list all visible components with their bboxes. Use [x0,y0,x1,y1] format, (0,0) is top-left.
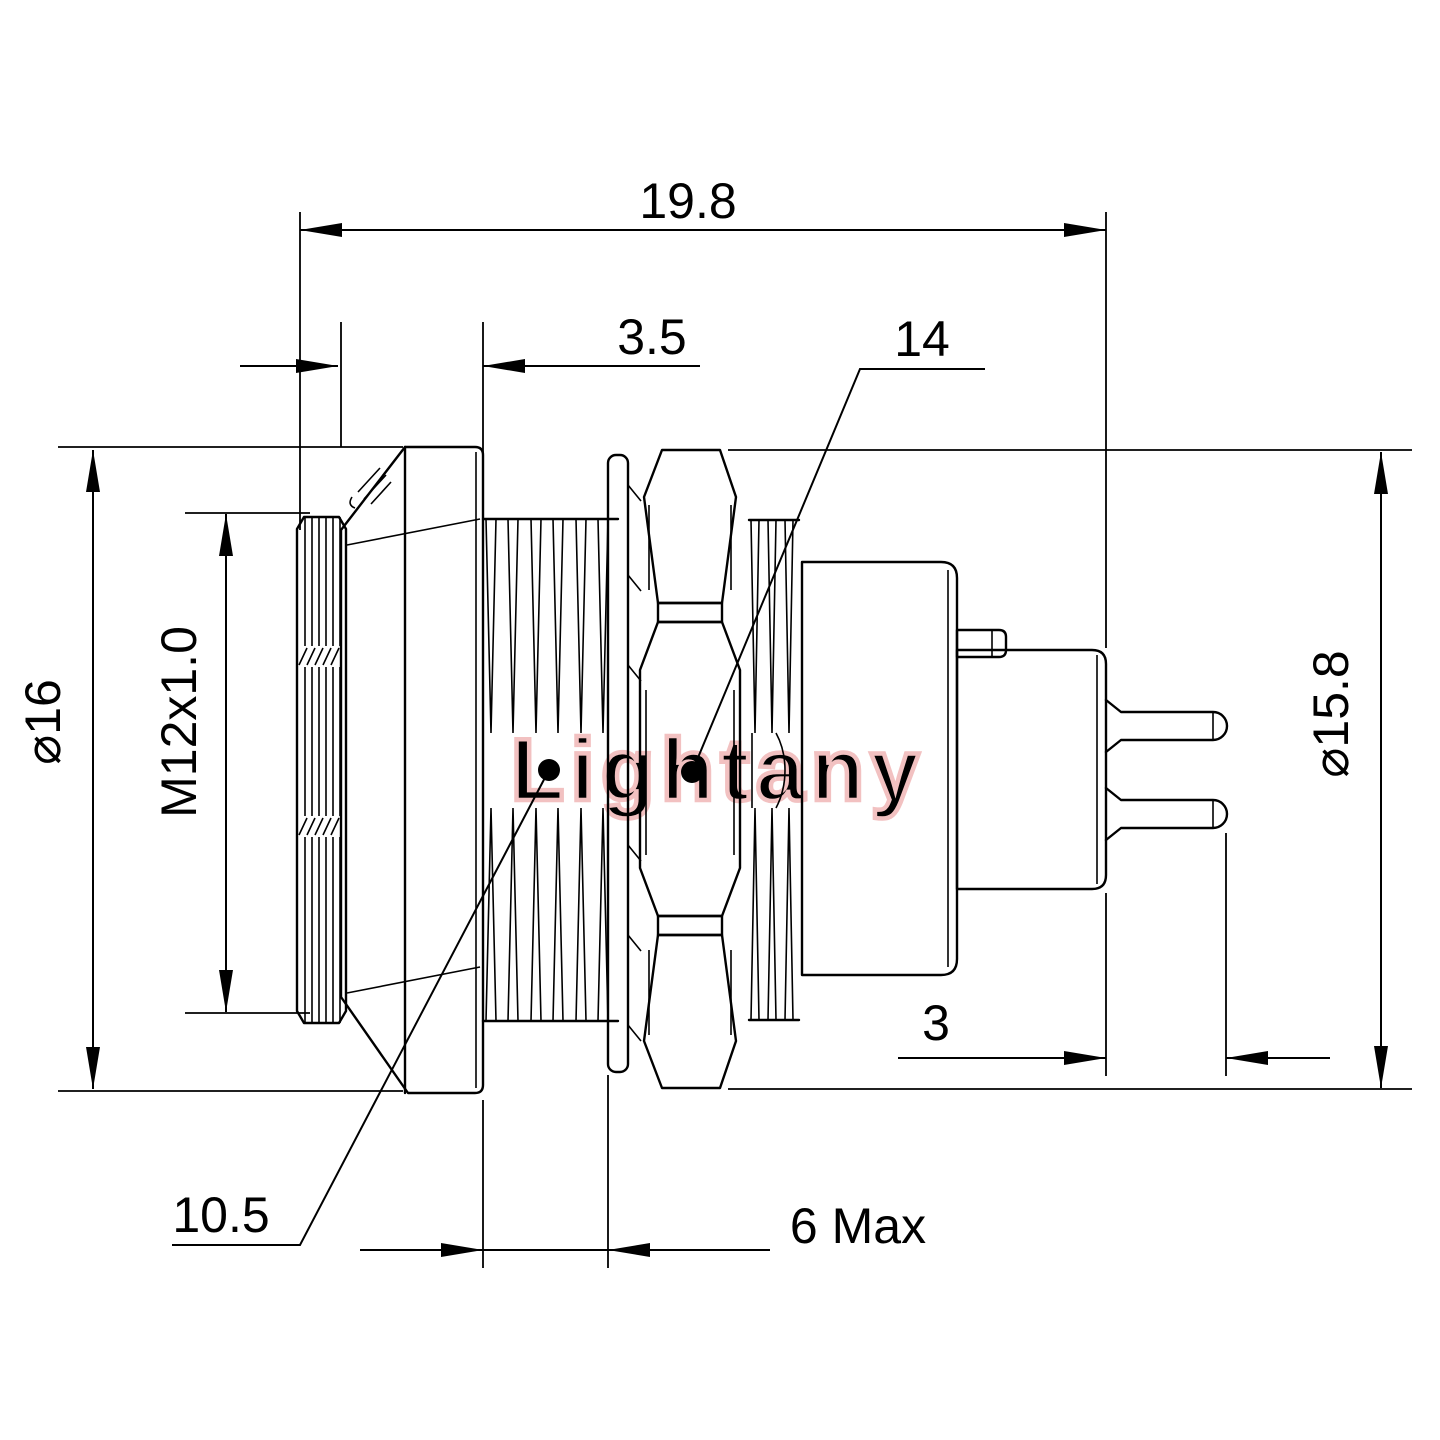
terminal-body [957,630,1106,889]
pin-upper [1106,700,1227,752]
key-tab [957,630,1006,657]
dim-overall-length-label: 19.8 [639,173,736,229]
dim-nut-across-corners-label: ⌀15.8 [1303,650,1359,777]
dim-panel-max-thickness: 6 Max [360,1075,926,1268]
dim-flange-thickness: 3.5 [240,309,700,517]
solder-pins [1106,700,1227,840]
dim-thread-spec-label: M12x1.0 [151,626,207,818]
dim-panel-max-thickness-label: 6 Max [790,1198,926,1254]
leader-dot-nut [681,761,703,783]
leader-thread-minor: 10.5 [172,759,560,1245]
knurl-ring [297,517,346,1023]
dim-flange-diameter-label: ⌀16 [15,679,71,765]
leader-nut-across-flats: 14 [681,311,985,783]
dim-pin-tail-length: 3 [898,833,1330,1076]
watermark-text: Lightany [511,720,926,819]
dim-thread-spec: M12x1.0 [151,513,310,1013]
dim-overall-length: 19.8 [300,173,1106,648]
pin-lower [1106,788,1227,840]
dim-thread-minor-label: 10.5 [172,1187,269,1243]
dim-nut-across-flats-label: 14 [894,311,950,367]
mounting-flange [341,447,483,1093]
drawing-page: Lightany [0,0,1440,1440]
dim-pin-tail-length-label: 3 [922,995,950,1051]
leader-dot-thread [538,759,560,781]
technical-drawing: Lightany [0,0,1440,1440]
dim-flange-thickness-label: 3.5 [617,309,687,365]
